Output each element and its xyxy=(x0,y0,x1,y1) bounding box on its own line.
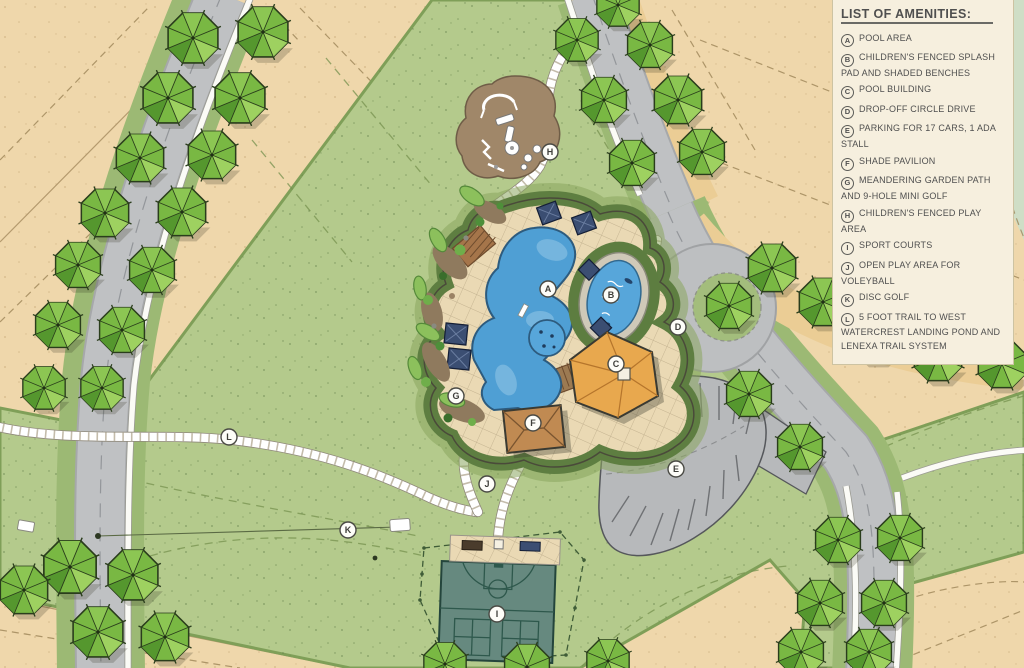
legend-letter-badge: J xyxy=(841,262,854,275)
legend-item-l: L5 FOOT TRAIL TO WEST WATERCREST LANDING… xyxy=(841,311,1005,353)
marker-letter: D xyxy=(675,322,682,332)
trail-sign xyxy=(17,520,34,533)
legend-letter-badge: C xyxy=(841,86,854,99)
legend-item-label: CHILDREN'S FENCED PLAY AREA xyxy=(841,208,981,234)
map-marker-b: B xyxy=(603,287,619,303)
shade-pavilion xyxy=(503,404,572,458)
bench xyxy=(520,542,540,552)
marker-letter: K xyxy=(345,525,352,535)
map-marker-d: D xyxy=(670,319,686,335)
marker-letter: H xyxy=(547,147,554,157)
map-marker-f: F xyxy=(525,415,541,431)
map-marker-k: K xyxy=(340,522,356,538)
legend-item-c: CPOOL BUILDING xyxy=(841,83,1005,99)
drinking-fountain xyxy=(494,540,503,549)
map-marker-i: I xyxy=(489,606,505,622)
site-plan-screenshot: ABCDEFGHIJKL LIST OF AMENITIES: APOOL AR… xyxy=(0,0,1024,668)
marker-letter: E xyxy=(673,464,679,474)
legend-letter-badge: I xyxy=(841,242,854,255)
marker-letter: B xyxy=(608,290,615,300)
legend-letter-badge: D xyxy=(841,106,854,119)
legend-item-i: ISPORT COURTS xyxy=(841,239,1005,255)
legend-item-k: KDISC GOLF xyxy=(841,291,1005,307)
legend-item-label: POOL BUILDING xyxy=(859,84,931,94)
legend-item-h: HCHILDREN'S FENCED PLAY AREA xyxy=(841,207,1005,236)
marker-letter: I xyxy=(496,609,499,619)
map-marker-a: A xyxy=(540,281,556,297)
legend-letter-badge: G xyxy=(841,177,854,190)
marker-letter: J xyxy=(484,479,489,489)
marker-letter: F xyxy=(530,418,536,428)
bench xyxy=(462,541,482,551)
map-marker-e: E xyxy=(668,461,684,477)
legend-item-label: SPORT COURTS xyxy=(859,240,932,250)
legend-item-label: CHILDREN'S FENCED SPLASH PAD AND SHADED … xyxy=(841,52,995,78)
map-marker-g: G xyxy=(448,388,464,404)
legend-letter-badge: F xyxy=(841,158,854,171)
legend-letter-badge: B xyxy=(841,54,854,67)
map-marker-j: J xyxy=(479,476,495,492)
legend-title: LIST OF AMENITIES: xyxy=(841,7,993,24)
map-marker-h: H xyxy=(542,144,558,160)
disc-golf-basket xyxy=(95,533,101,539)
legend-item-label: DROP-OFF CIRCLE DRIVE xyxy=(859,104,976,114)
legend-item-label: OPEN PLAY AREA FOR VOLEYBALL xyxy=(841,260,960,286)
legend-item-label: 5 FOOT TRAIL TO WEST WATERCREST LANDING … xyxy=(841,312,1000,351)
legend-item-j: JOPEN PLAY AREA FOR VOLEYBALL xyxy=(841,259,1005,288)
legend-item-label: MEANDERING GARDEN PATH AND 9-HOLE MINI G… xyxy=(841,175,991,201)
map-marker-c: C xyxy=(608,356,624,372)
legend-item-label: POOL AREA xyxy=(859,33,912,43)
court-plaza xyxy=(450,535,561,565)
legend-item-e: EPARKING FOR 17 CARS, 1 ADA STALL xyxy=(841,122,1005,151)
legend-letter-badge: E xyxy=(841,125,854,138)
marker-letter: C xyxy=(613,359,620,369)
legend-item-b: BCHILDREN'S FENCED SPLASH PAD AND SHADED… xyxy=(841,51,1005,80)
legend-letter-badge: L xyxy=(841,313,854,326)
legend-letter-badge: K xyxy=(841,294,854,307)
marker-letter: L xyxy=(226,432,232,442)
legend-item-d: DDROP-OFF CIRCLE DRIVE xyxy=(841,103,1005,119)
legend-item-f: FSHADE PAVILION xyxy=(841,155,1005,171)
legend-item-label: SHADE PAVILION xyxy=(859,156,936,166)
legend-item-label: PARKING FOR 17 CARS, 1 ADA STALL xyxy=(841,123,996,149)
legend-letter-badge: A xyxy=(841,34,854,47)
marker-letter: G xyxy=(452,391,459,401)
amenities-legend: LIST OF AMENITIES: APOOL AREA BCHILDREN'… xyxy=(832,0,1014,365)
map-marker-l: L xyxy=(221,429,237,445)
legend-item-label: DISC GOLF xyxy=(859,292,909,302)
marker-letter: A xyxy=(545,284,552,294)
legend-letter-badge: H xyxy=(841,210,854,223)
disc-golf-basket xyxy=(373,556,378,561)
legend-item-a: APOOL AREA xyxy=(841,32,1005,48)
round-splash-pool xyxy=(529,320,565,356)
legend-item-g: GMEANDERING GARDEN PATH AND 9-HOLE MINI … xyxy=(841,174,1005,203)
disc-golf-tee-pad xyxy=(390,518,411,531)
